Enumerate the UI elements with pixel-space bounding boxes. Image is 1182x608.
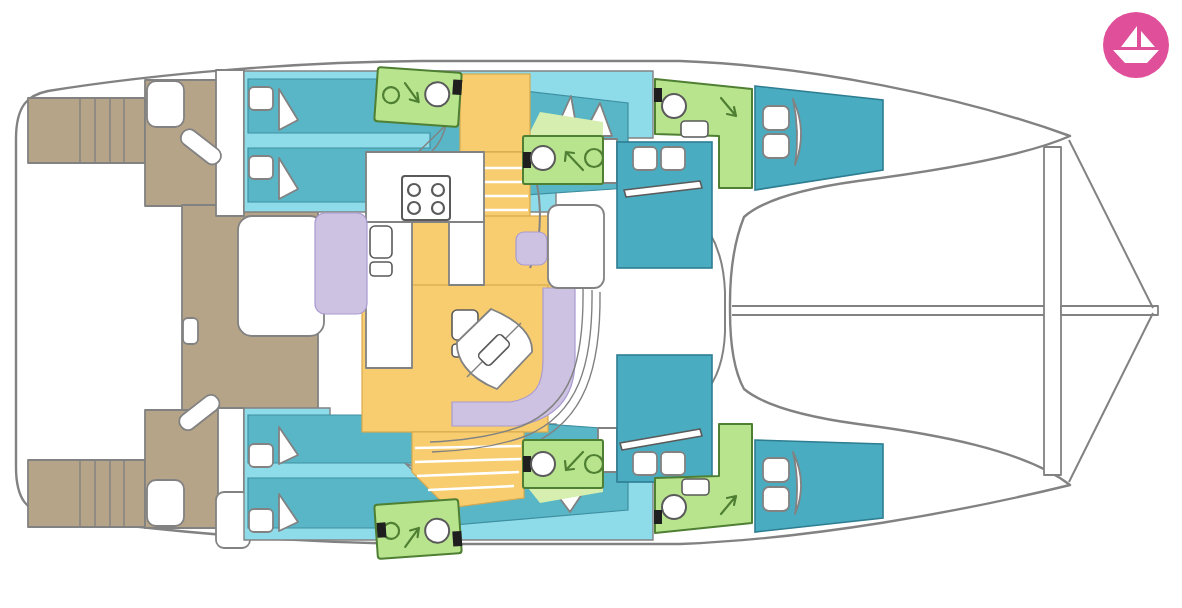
stove-top bbox=[402, 176, 450, 220]
transom-steps-starboard bbox=[28, 460, 145, 527]
door-marker bbox=[452, 79, 462, 95]
bow-line-starboard bbox=[1069, 313, 1153, 482]
door-marker bbox=[654, 510, 662, 524]
sink-icon bbox=[682, 479, 709, 495]
catamaran-floor-plan bbox=[0, 0, 1182, 608]
toilet-icon bbox=[424, 518, 450, 544]
helm-seat-starboard bbox=[147, 480, 184, 526]
bowsprit bbox=[1061, 306, 1158, 315]
pillow bbox=[661, 147, 685, 170]
pillow bbox=[633, 452, 657, 475]
pillow bbox=[763, 458, 789, 482]
salon-floor-upper bbox=[460, 74, 530, 152]
door-marker bbox=[523, 456, 531, 472]
pillow bbox=[633, 147, 657, 170]
pillow bbox=[763, 134, 789, 158]
floor-plan-canvas bbox=[0, 0, 1182, 608]
cockpit-table bbox=[238, 216, 324, 336]
door-marker bbox=[654, 88, 662, 102]
toilet-icon bbox=[531, 452, 555, 476]
toilet-icon bbox=[662, 94, 686, 118]
bathroom-starboard-aft bbox=[374, 499, 463, 559]
toilet-icon bbox=[424, 82, 450, 108]
toilet-icon bbox=[531, 146, 555, 170]
pillow bbox=[763, 487, 789, 511]
bow-line-port bbox=[1069, 140, 1153, 308]
bathroom-port-mid bbox=[523, 136, 603, 184]
sink-icon bbox=[681, 121, 708, 137]
brand-logo bbox=[1103, 12, 1169, 78]
settee-stool bbox=[516, 232, 547, 265]
cockpit-mini-seat bbox=[183, 318, 198, 344]
pillow bbox=[249, 444, 273, 467]
door-marker bbox=[523, 152, 531, 168]
bathroom-starboard-mid bbox=[523, 440, 603, 488]
door-marker bbox=[452, 531, 462, 547]
galley-fridge bbox=[370, 226, 392, 258]
pillow bbox=[249, 156, 273, 179]
nav-station bbox=[548, 205, 604, 288]
bow-crossbeam bbox=[1044, 147, 1061, 475]
starboard-bow-berth bbox=[755, 440, 883, 532]
stove bbox=[402, 176, 450, 220]
galley-drawer bbox=[370, 262, 392, 276]
pillow bbox=[763, 106, 789, 130]
pillow bbox=[249, 87, 273, 110]
settee-port bbox=[315, 213, 367, 314]
pillow bbox=[661, 452, 685, 475]
toilet-icon bbox=[662, 495, 686, 519]
pillow bbox=[249, 509, 273, 532]
galley-counter-right bbox=[449, 222, 484, 285]
door-marker bbox=[376, 522, 386, 538]
bathroom-port-aft bbox=[374, 67, 463, 127]
helm-seat-port bbox=[147, 81, 184, 127]
companionway-port bbox=[216, 70, 244, 216]
transom-steps-port bbox=[28, 98, 145, 163]
